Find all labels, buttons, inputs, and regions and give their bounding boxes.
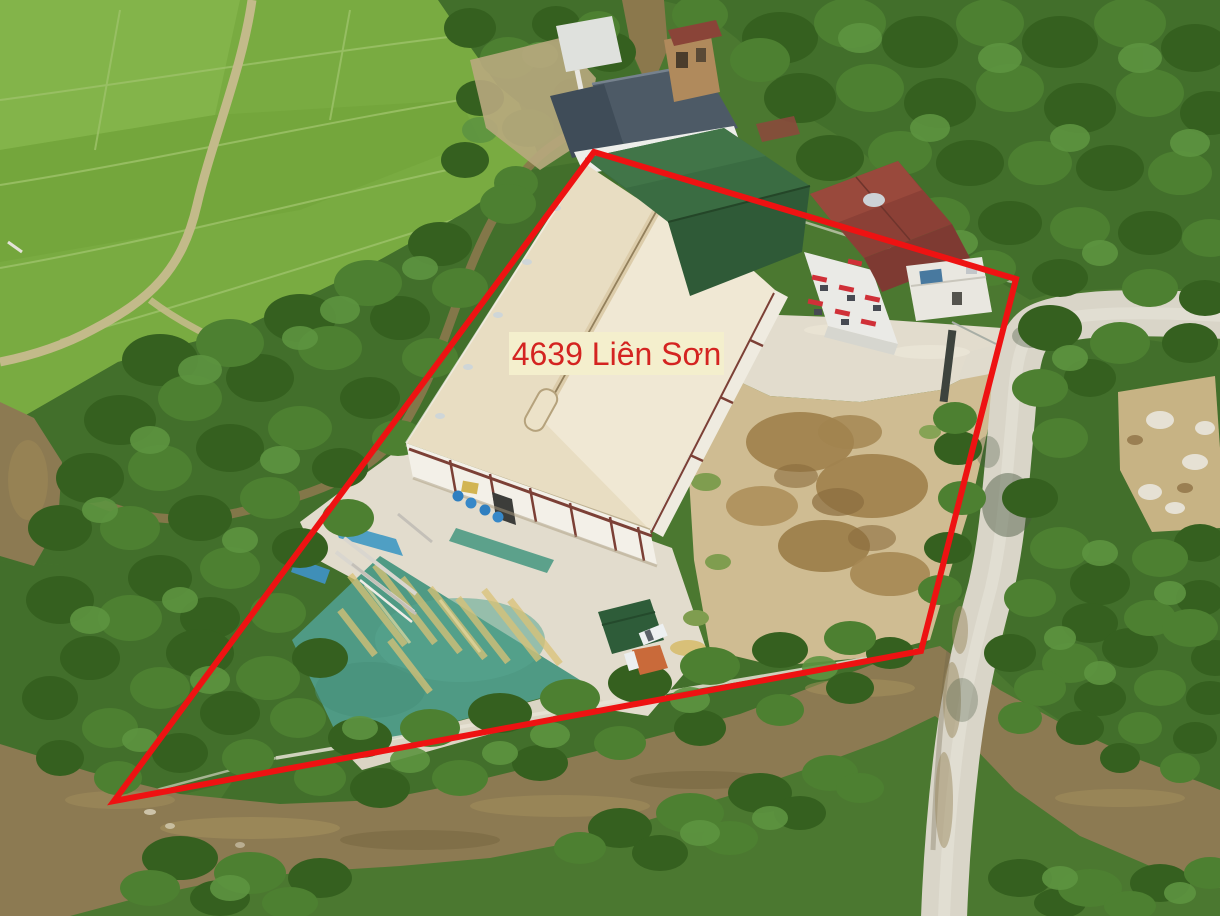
- water-tank: [863, 193, 885, 207]
- solar-panel: [919, 269, 942, 285]
- aerial-photo: 4639 Liên Sơn: [0, 0, 1220, 916]
- aerial-photo-canvas: [0, 0, 1220, 916]
- white-building: [556, 16, 622, 72]
- property-label: 4639 Liên Sơn: [509, 332, 724, 375]
